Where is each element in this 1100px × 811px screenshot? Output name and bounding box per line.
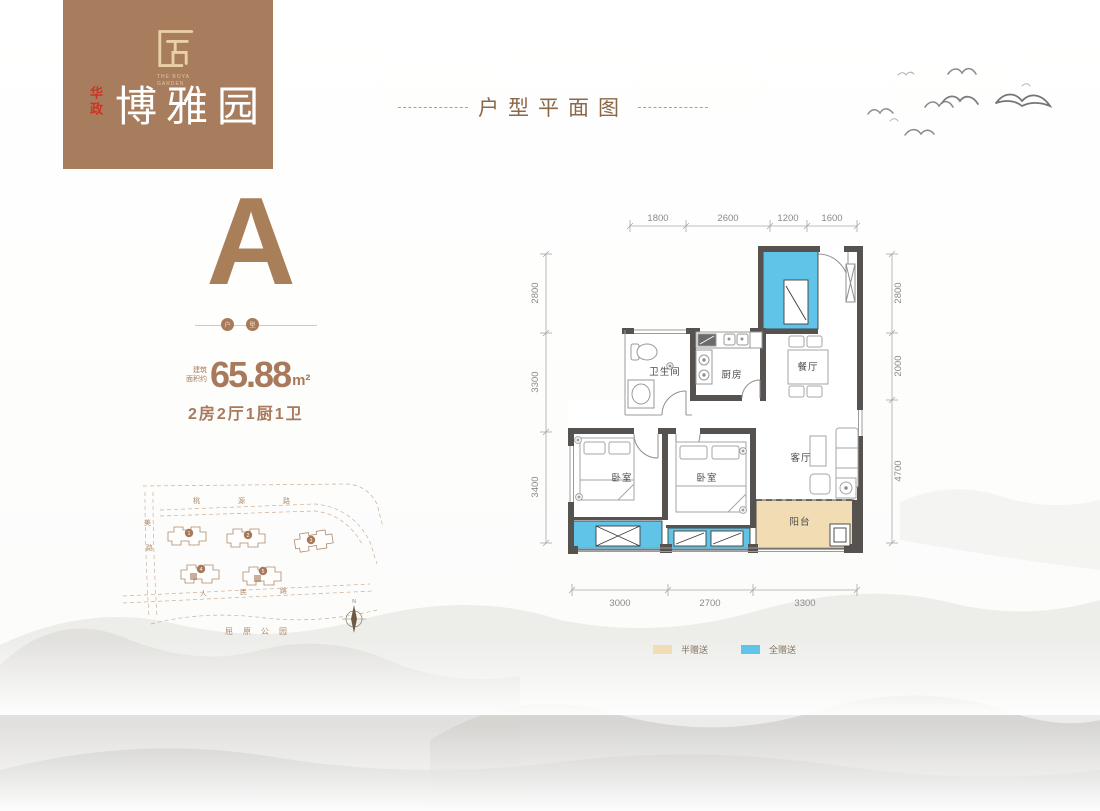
brand-logo-box: THE BOYA GARDEN 华政 博雅园: [63, 0, 273, 169]
label-living: 客厅: [790, 452, 811, 464]
dim-bottom-3: 3300: [794, 598, 815, 609]
road-left-char2: 路: [146, 543, 153, 552]
title-dash-left: [398, 107, 468, 108]
dim-bottom-2: 2700: [699, 598, 720, 609]
full-gift-swatch: [741, 645, 760, 654]
road-bottom-label: 人民路: [200, 585, 320, 598]
park-label: 屈原公园: [225, 627, 297, 636]
birds-icon: [850, 58, 1080, 150]
site-roads: [123, 484, 383, 624]
divider-circle-hu: 户: [221, 318, 234, 331]
compass-icon: N: [342, 599, 366, 633]
gift-legend: 半赠送 全赠送: [653, 643, 796, 656]
road-left-char1: 美: [144, 518, 151, 527]
compass-n-label: N: [352, 599, 356, 605]
area-prefix-label: 建筑 面积约: [186, 367, 207, 385]
label-kitchen: 厨房: [721, 369, 742, 381]
dim-left-3: 3400: [530, 476, 541, 497]
project-name: 博雅园: [110, 84, 273, 130]
dim-top-1: 1800: [647, 213, 668, 224]
floorplan-drawing: 卫生间 厨房 餐厅 客厅 卧室 卧室 阳台: [500, 180, 920, 620]
label-bedroom-left: 卧室: [611, 472, 632, 484]
brand-vertical-label: 华政: [86, 86, 105, 118]
page-title: 户型平面图: [478, 92, 628, 122]
half-gift-label: 半赠送: [681, 643, 708, 656]
full-gift-label: 全赠送: [769, 643, 796, 656]
dim-bottom-1: 3000: [609, 598, 630, 609]
building-4-number: 4: [200, 567, 203, 573]
page-title-row: 户型平面图: [398, 92, 708, 122]
area-value: 65.88: [210, 360, 290, 391]
dim-right-3: 4700: [893, 460, 904, 481]
poster-canvas: THE BOYA GARDEN 华政 博雅园 户型平面图 A 户 型 建筑 面积…: [0, 0, 1100, 811]
dim-right-2: 2000: [893, 355, 904, 376]
label-bathroom: 卫生间: [649, 366, 681, 378]
site-map: 1 2 3 4 5 桃源路 美 路 人民路 屈原公园 N: [115, 472, 385, 642]
dim-right-1: 2800: [893, 282, 904, 303]
dim-top-3: 1200: [777, 213, 798, 224]
building-3-number: 3: [310, 538, 313, 544]
area-unit: m²: [292, 372, 310, 389]
dim-left-1: 2800: [530, 282, 541, 303]
label-bedroom-mid: 卧室: [696, 472, 717, 484]
building-5-number: 5: [262, 569, 265, 575]
unit-layout-desc: 2房2厅1厨1卫: [188, 400, 304, 424]
divider-circle-xing: 型: [246, 318, 259, 331]
building-1-number: 1: [188, 531, 191, 537]
unit-type-letter: A: [186, 180, 316, 304]
building-2-number: 2: [247, 533, 250, 539]
label-dining: 餐厅: [797, 361, 818, 373]
dim-top-4: 1600: [821, 213, 842, 224]
craftsman-seal-icon: [151, 26, 195, 70]
half-gift-swatch: [653, 645, 672, 654]
dim-left-2: 3300: [530, 371, 541, 392]
title-dash-right: [638, 107, 708, 108]
bedroom-left-furniture: [575, 437, 634, 501]
road-top-label: 桃源路: [193, 496, 328, 505]
label-balcony: 阳台: [789, 516, 810, 528]
dim-top-2: 2600: [717, 213, 738, 224]
unit-area: 建筑 面积约 65.88 m²: [186, 360, 310, 391]
